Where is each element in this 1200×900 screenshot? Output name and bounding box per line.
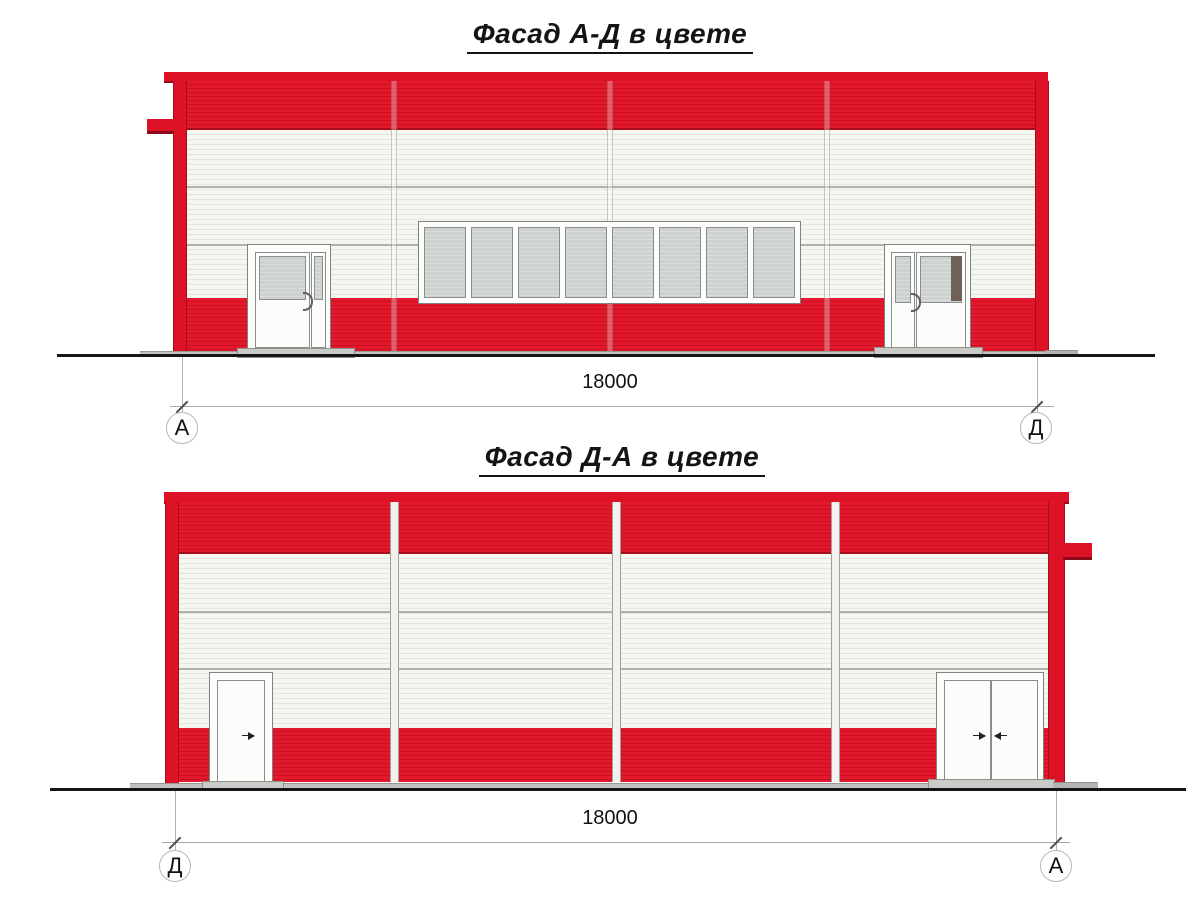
window-glass-pane [659, 227, 701, 298]
open-door-reveal [951, 256, 962, 301]
facade-da-title: Фасад Д-А в цвете [22, 441, 1200, 477]
entrance-door-left [247, 244, 331, 353]
axis-marker-right: А [1040, 850, 1072, 882]
vertical-panel-joint [391, 81, 397, 353]
window-glass-pane [565, 227, 607, 298]
window-glass-pane [424, 227, 466, 298]
door-glass [314, 256, 323, 300]
corner-trim-right [1035, 81, 1049, 353]
entrance-door-right [884, 244, 971, 352]
window-glass-pane [612, 227, 654, 298]
ground-line [57, 354, 1155, 357]
door-side-panel [311, 252, 326, 348]
door-swing-arrow-icon [973, 735, 985, 736]
corner-trim-left [165, 502, 179, 786]
dimension-label: 18000 [520, 371, 700, 394]
door-leaf [217, 680, 265, 783]
dimension-line [162, 842, 1070, 843]
door-leaf [944, 680, 991, 780]
corner-trim-left [173, 81, 187, 353]
gutter-bracket-left [147, 119, 174, 134]
window-glass-pane [706, 227, 748, 298]
door-swing-arrow-icon [995, 735, 1007, 736]
double-door-right [936, 672, 1044, 784]
vertical-panel-joint [390, 502, 399, 782]
window-glass-pane [518, 227, 560, 298]
door-leaf [991, 680, 1038, 780]
axis-marker-left: А [166, 412, 198, 444]
door-glass [895, 256, 911, 303]
vertical-panel-joint [607, 81, 613, 353]
window-glass-pane [471, 227, 513, 298]
elevation-drawing-sheet: Фасад А-Д в цвете [0, 0, 1200, 900]
ribbon-window [418, 221, 801, 304]
door-glass [259, 256, 306, 300]
facade-ad-title-text: Фасад А-Д в цвете [467, 18, 753, 54]
door-leaf [916, 252, 966, 349]
axis-marker-left: Д [159, 850, 191, 882]
dimension-line [170, 406, 1054, 407]
dimension-label: 18000 [520, 807, 700, 830]
window-glass-pane [753, 227, 795, 298]
gutter-bracket-right [1063, 543, 1092, 560]
facade-da-title-text: Фасад Д-А в цвете [479, 441, 765, 477]
window-glazing [424, 227, 795, 298]
service-door-left [209, 672, 273, 786]
vertical-panel-joint [831, 502, 840, 782]
door-swing-arrow-icon [242, 735, 254, 736]
door-leaf [255, 252, 310, 348]
ground-line [50, 788, 1186, 791]
vertical-panel-joint [824, 81, 830, 353]
vertical-panel-joint [612, 502, 621, 782]
facade-ad-title: Фасад А-Д в цвете [10, 18, 1200, 54]
axis-marker-right: Д [1020, 412, 1052, 444]
